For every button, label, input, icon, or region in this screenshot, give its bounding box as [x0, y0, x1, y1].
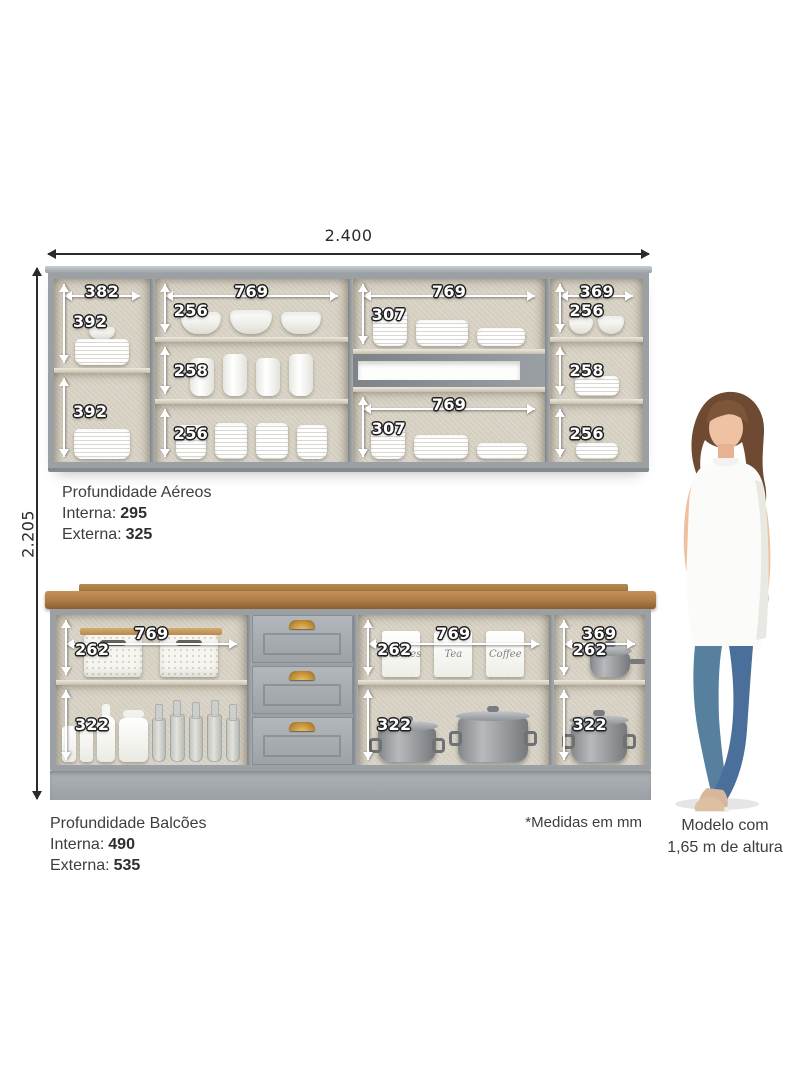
dimension-label: 256	[569, 424, 603, 443]
upper-col1-top-compartment: 382 392	[54, 279, 150, 368]
overall-height-dimension: 2.205	[22, 268, 44, 799]
lower-sec3-top-compartment: 769 262 Cookies Tea Coffee	[358, 615, 549, 680]
upper-col1-bottom-compartment: 392	[54, 373, 150, 462]
upper-depth-interna-value: 295	[120, 505, 147, 522]
dimension-arrow-vertical	[559, 284, 561, 332]
dimension-arrow-vertical	[65, 620, 67, 675]
dimension-label: 258	[569, 361, 603, 380]
cup-stack	[289, 354, 313, 396]
lower-depth-interna-label: Interna:	[50, 836, 104, 853]
lower-depth-note: Profundidade Balcões Interna:490 Externa…	[50, 813, 207, 876]
upper-col3-open-niche	[353, 354, 546, 388]
overall-width-label: 2.400	[48, 226, 649, 245]
dimension-label: 769	[230, 282, 272, 301]
pot-handle	[524, 731, 537, 746]
lower-section-1: 769 262 322	[56, 615, 247, 765]
dimension-height: 392	[60, 284, 124, 363]
dimension-label: 256	[569, 301, 603, 320]
dimension-label: 769	[428, 282, 470, 301]
lower-section-4: 369 262 322	[554, 615, 645, 765]
upper-cabinet: 382 392	[48, 266, 649, 472]
cooking-pot	[458, 718, 528, 762]
upper-col2-shelf-2: 258	[155, 342, 348, 400]
pot-handle	[432, 738, 445, 753]
dimension-label: 392	[73, 312, 107, 331]
lower-sec4-bottom-compartment: 322	[554, 685, 645, 765]
upper-col2-shelf-3: 256	[155, 404, 348, 462]
glass-bottle	[152, 718, 167, 762]
lower-sec1-bottom-compartment: 322	[56, 685, 247, 765]
lower-sec3-bottom-compartment: 322	[358, 685, 549, 765]
pot-handle	[449, 731, 462, 746]
dimension-height: 258	[556, 347, 620, 395]
dimension-arrow-vertical	[563, 620, 565, 675]
dimension-height: 258	[161, 347, 225, 395]
countertop	[45, 591, 656, 609]
dimension-height: 256	[161, 409, 225, 457]
bowl-stack	[256, 423, 288, 459]
glass-bottle	[189, 716, 204, 762]
dimension-label: 307	[372, 419, 406, 438]
dimension-arrow-vertical	[65, 690, 67, 760]
canister-label: Tea	[444, 649, 462, 660]
dimension-arrow-vertical	[559, 347, 561, 395]
pot-handle	[623, 734, 636, 749]
cup-stack	[256, 358, 280, 396]
lower-cabinet-plinth	[50, 771, 651, 800]
drawer-column	[252, 615, 354, 765]
upper-depth-externa-label: Externa:	[62, 526, 122, 543]
dimension-arrow-vertical	[164, 409, 166, 457]
dimension-arrow-vertical	[559, 409, 561, 457]
upper-col3-bottom-compartment: 769 307	[353, 392, 546, 462]
cup-stack	[223, 354, 247, 396]
dimension-height: 392	[60, 378, 124, 457]
dimension-label: 322	[75, 715, 109, 734]
upper-cabinet-crown	[45, 266, 652, 273]
model-caption-line2: 1,65 m de altura	[667, 839, 783, 856]
dimension-arrow-vertical	[367, 620, 369, 675]
plate-stack	[477, 443, 527, 459]
upper-depth-title: Profundidade Aéreos	[62, 482, 211, 503]
measurements-footnote: *Medidas em mm	[430, 814, 642, 831]
dimension-label: 307	[372, 305, 406, 324]
dimension-arrow-vertical	[164, 284, 166, 332]
dimension-label: 769	[428, 395, 470, 414]
lower-depth-externa-label: Externa:	[50, 857, 110, 874]
dimension-height: 262	[364, 620, 428, 675]
plate-stack	[416, 320, 468, 346]
dimension-height: 322	[560, 690, 624, 760]
overall-height-label: 2.205	[19, 504, 38, 564]
dimension-height: 256	[556, 284, 620, 332]
model-caption: Modelo com 1,65 m de altura	[650, 815, 800, 859]
upper-column-2: 769 256 258	[155, 279, 348, 462]
lower-depth-title: Profundidade Balcões	[50, 813, 207, 834]
overall-width-arrow	[48, 253, 649, 255]
canister-label: Coffee	[489, 649, 522, 660]
dimension-arrow-vertical	[563, 690, 565, 760]
lower-sec4-top-compartment: 369 262	[554, 615, 645, 680]
bowl	[230, 310, 272, 334]
dimension-height: 262	[62, 620, 126, 675]
dimension-arrow-vertical	[164, 347, 166, 395]
plate-stack	[477, 328, 525, 346]
drawer-2	[252, 666, 354, 714]
model-caption-line1: Modelo com	[681, 817, 768, 834]
glass-bottle	[170, 714, 185, 762]
dimension-arrow-vertical	[362, 284, 364, 344]
upper-column-4: 369 256 258	[550, 279, 643, 462]
upper-column-3: 769 307	[353, 279, 546, 462]
overall-width-dimension: 2.400	[48, 226, 649, 258]
dimension-label: 258	[174, 361, 208, 380]
dimension-arrow-vertical	[63, 284, 65, 363]
glass-bottle	[207, 714, 222, 762]
dimension-height: 322	[62, 690, 126, 760]
dimension-label: 769	[130, 624, 172, 643]
lower-cabinet-body: 769 262 322	[50, 609, 651, 771]
dimension-label: 322	[573, 715, 607, 734]
model-figure	[648, 388, 800, 812]
drawer-3	[252, 717, 354, 765]
dimension-label: 256	[174, 424, 208, 443]
upper-col4-shelf-2: 258	[550, 342, 643, 400]
upper-depth-interna-label: Interna:	[62, 505, 116, 522]
dimension-height: 322	[364, 690, 428, 760]
dimension-label: 262	[75, 640, 109, 659]
dimension-height: 307	[359, 397, 423, 457]
upper-col4-shelf-3: 256	[550, 404, 643, 462]
lower-sec1-top-compartment: 769 262	[56, 615, 247, 680]
bowl-stack	[297, 425, 327, 459]
lower-cabinet: 769 262 322	[45, 584, 656, 800]
dimension-arrow-vertical	[63, 378, 65, 457]
lower-section-3: 769 262 Cookies Tea Coffee	[358, 615, 549, 765]
dimension-height: 307	[359, 284, 423, 344]
lower-depth-interna-value: 490	[108, 836, 135, 853]
bowl	[281, 312, 321, 334]
dimension-arrow-vertical	[362, 397, 364, 457]
dimension-label: 262	[377, 640, 411, 659]
dimension-arrow-vertical	[367, 690, 369, 760]
upper-depth-externa-value: 325	[126, 526, 153, 543]
dimension-label: 769	[432, 624, 474, 643]
dimension-height: 256	[161, 284, 225, 332]
saucepan-handle	[629, 659, 645, 664]
upper-column-1: 382 392	[54, 279, 150, 462]
upper-col4-shelf-1: 369 256	[550, 279, 643, 337]
upper-col3-top-compartment: 769 307	[353, 279, 546, 349]
dimension-label: 322	[377, 715, 411, 734]
lower-depth-externa-value: 535	[114, 857, 141, 874]
dimension-height: 256	[556, 409, 620, 457]
dimension-label: 256	[174, 301, 208, 320]
upper-depth-note: Profundidade Aéreos Interna:295 Externa:…	[62, 482, 211, 545]
dimension-label: 392	[73, 402, 107, 421]
upper-cabinet-body: 382 392	[48, 273, 649, 472]
upper-col2-shelf-1: 769 256	[155, 279, 348, 337]
dimension-height: 262	[560, 620, 624, 675]
drawer-1	[252, 615, 354, 663]
kitchen-dimensions-diagram: 2.400 2.205 382 392	[0, 0, 800, 1066]
glass-bottle	[226, 718, 241, 762]
dimension-label: 262	[573, 640, 607, 659]
